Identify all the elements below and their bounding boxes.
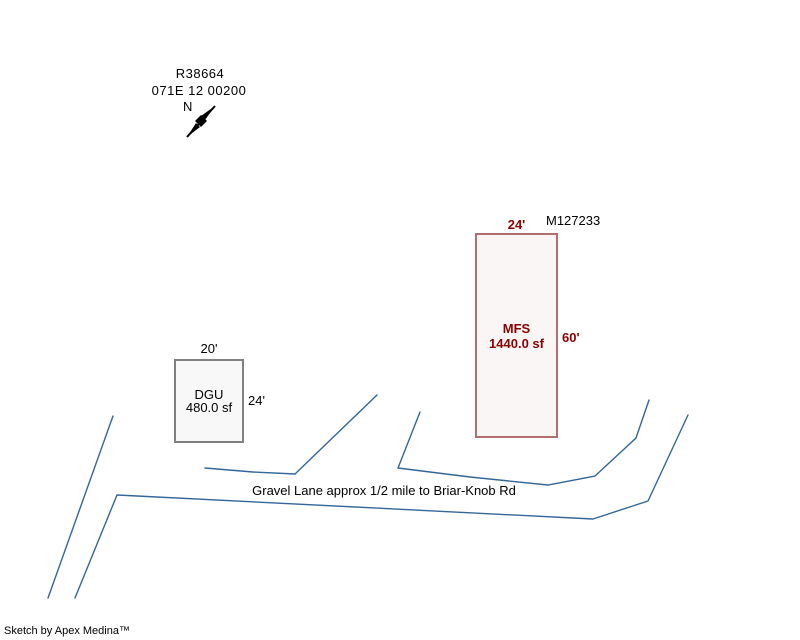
building-dgu: DGU 480.0 sf bbox=[174, 359, 244, 443]
mfs-area: 1440.0 sf bbox=[489, 336, 544, 351]
dgu-top-dimension: 20' bbox=[174, 341, 244, 356]
mfs-label: MFS bbox=[503, 321, 530, 336]
property-sketch: R38664 071E 12 00200 N M127233 24' MFS 1… bbox=[0, 0, 800, 640]
road-label: Gravel Lane approx 1/2 mile to Briar-Kno… bbox=[234, 483, 534, 498]
mfs-top-dimension: 24' bbox=[475, 217, 558, 232]
parcel-id: R38664 bbox=[140, 66, 260, 81]
sketch-credit: Sketch by Apex Medina™ bbox=[4, 625, 130, 637]
north-arrow-icon bbox=[184, 103, 218, 140]
map-number: 071E 12 00200 bbox=[124, 83, 274, 98]
dgu-right-dimension: 24' bbox=[248, 393, 265, 408]
dgu-area: 480.0 sf bbox=[186, 401, 232, 414]
building-mfs: MFS 1440.0 sf bbox=[475, 233, 558, 438]
mfs-right-dimension: 60' bbox=[562, 330, 580, 345]
road-lines bbox=[0, 0, 800, 640]
